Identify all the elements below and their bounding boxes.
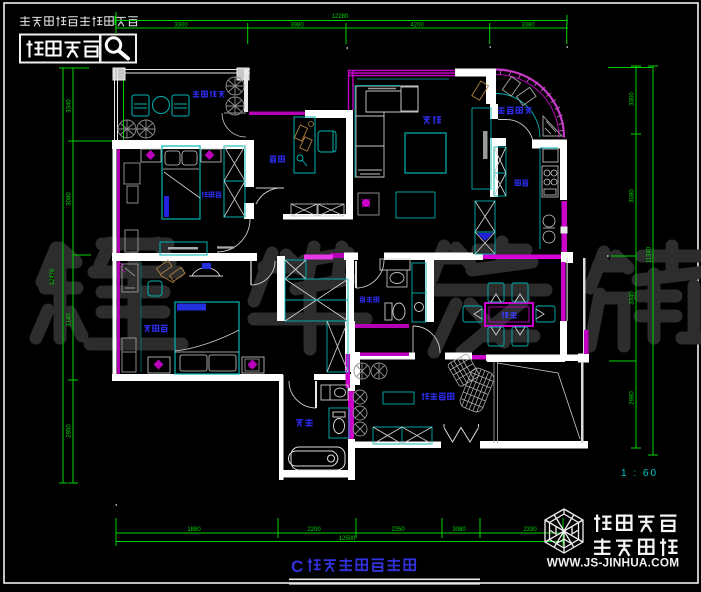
svg-text:4200: 4200: [410, 23, 424, 29]
svg-text:2850: 2850: [67, 424, 73, 438]
svg-text:3080: 3080: [67, 192, 73, 206]
svg-text:3300: 3300: [174, 23, 188, 29]
svg-text:3340: 3340: [630, 291, 636, 305]
svg-text:3980: 3980: [290, 23, 304, 29]
svg-text:12500: 12500: [339, 536, 356, 542]
svg-text:3080: 3080: [452, 527, 466, 533]
svg-text:1 : 60: 1 : 60: [621, 468, 658, 479]
svg-text:3080: 3080: [630, 189, 636, 203]
svg-text:2330: 2330: [523, 527, 537, 533]
svg-text:1880: 1880: [187, 527, 201, 533]
svg-text:C: C: [291, 557, 303, 576]
svg-text:3300: 3300: [630, 92, 636, 106]
svg-text:2350: 2350: [391, 527, 405, 533]
svg-text:11340: 11340: [647, 246, 653, 263]
svg-text:3140: 3140: [67, 313, 73, 327]
svg-text:2980: 2980: [630, 391, 636, 405]
svg-text:3380: 3380: [521, 23, 535, 29]
svg-text:3340: 3340: [67, 99, 73, 113]
svg-text:WWW.JS-JINHUA.COM: WWW.JS-JINHUA.COM: [547, 556, 680, 570]
svg-text:12470: 12470: [50, 268, 56, 285]
svg-text:2200: 2200: [307, 527, 321, 533]
svg-text:12280: 12280: [332, 14, 349, 20]
